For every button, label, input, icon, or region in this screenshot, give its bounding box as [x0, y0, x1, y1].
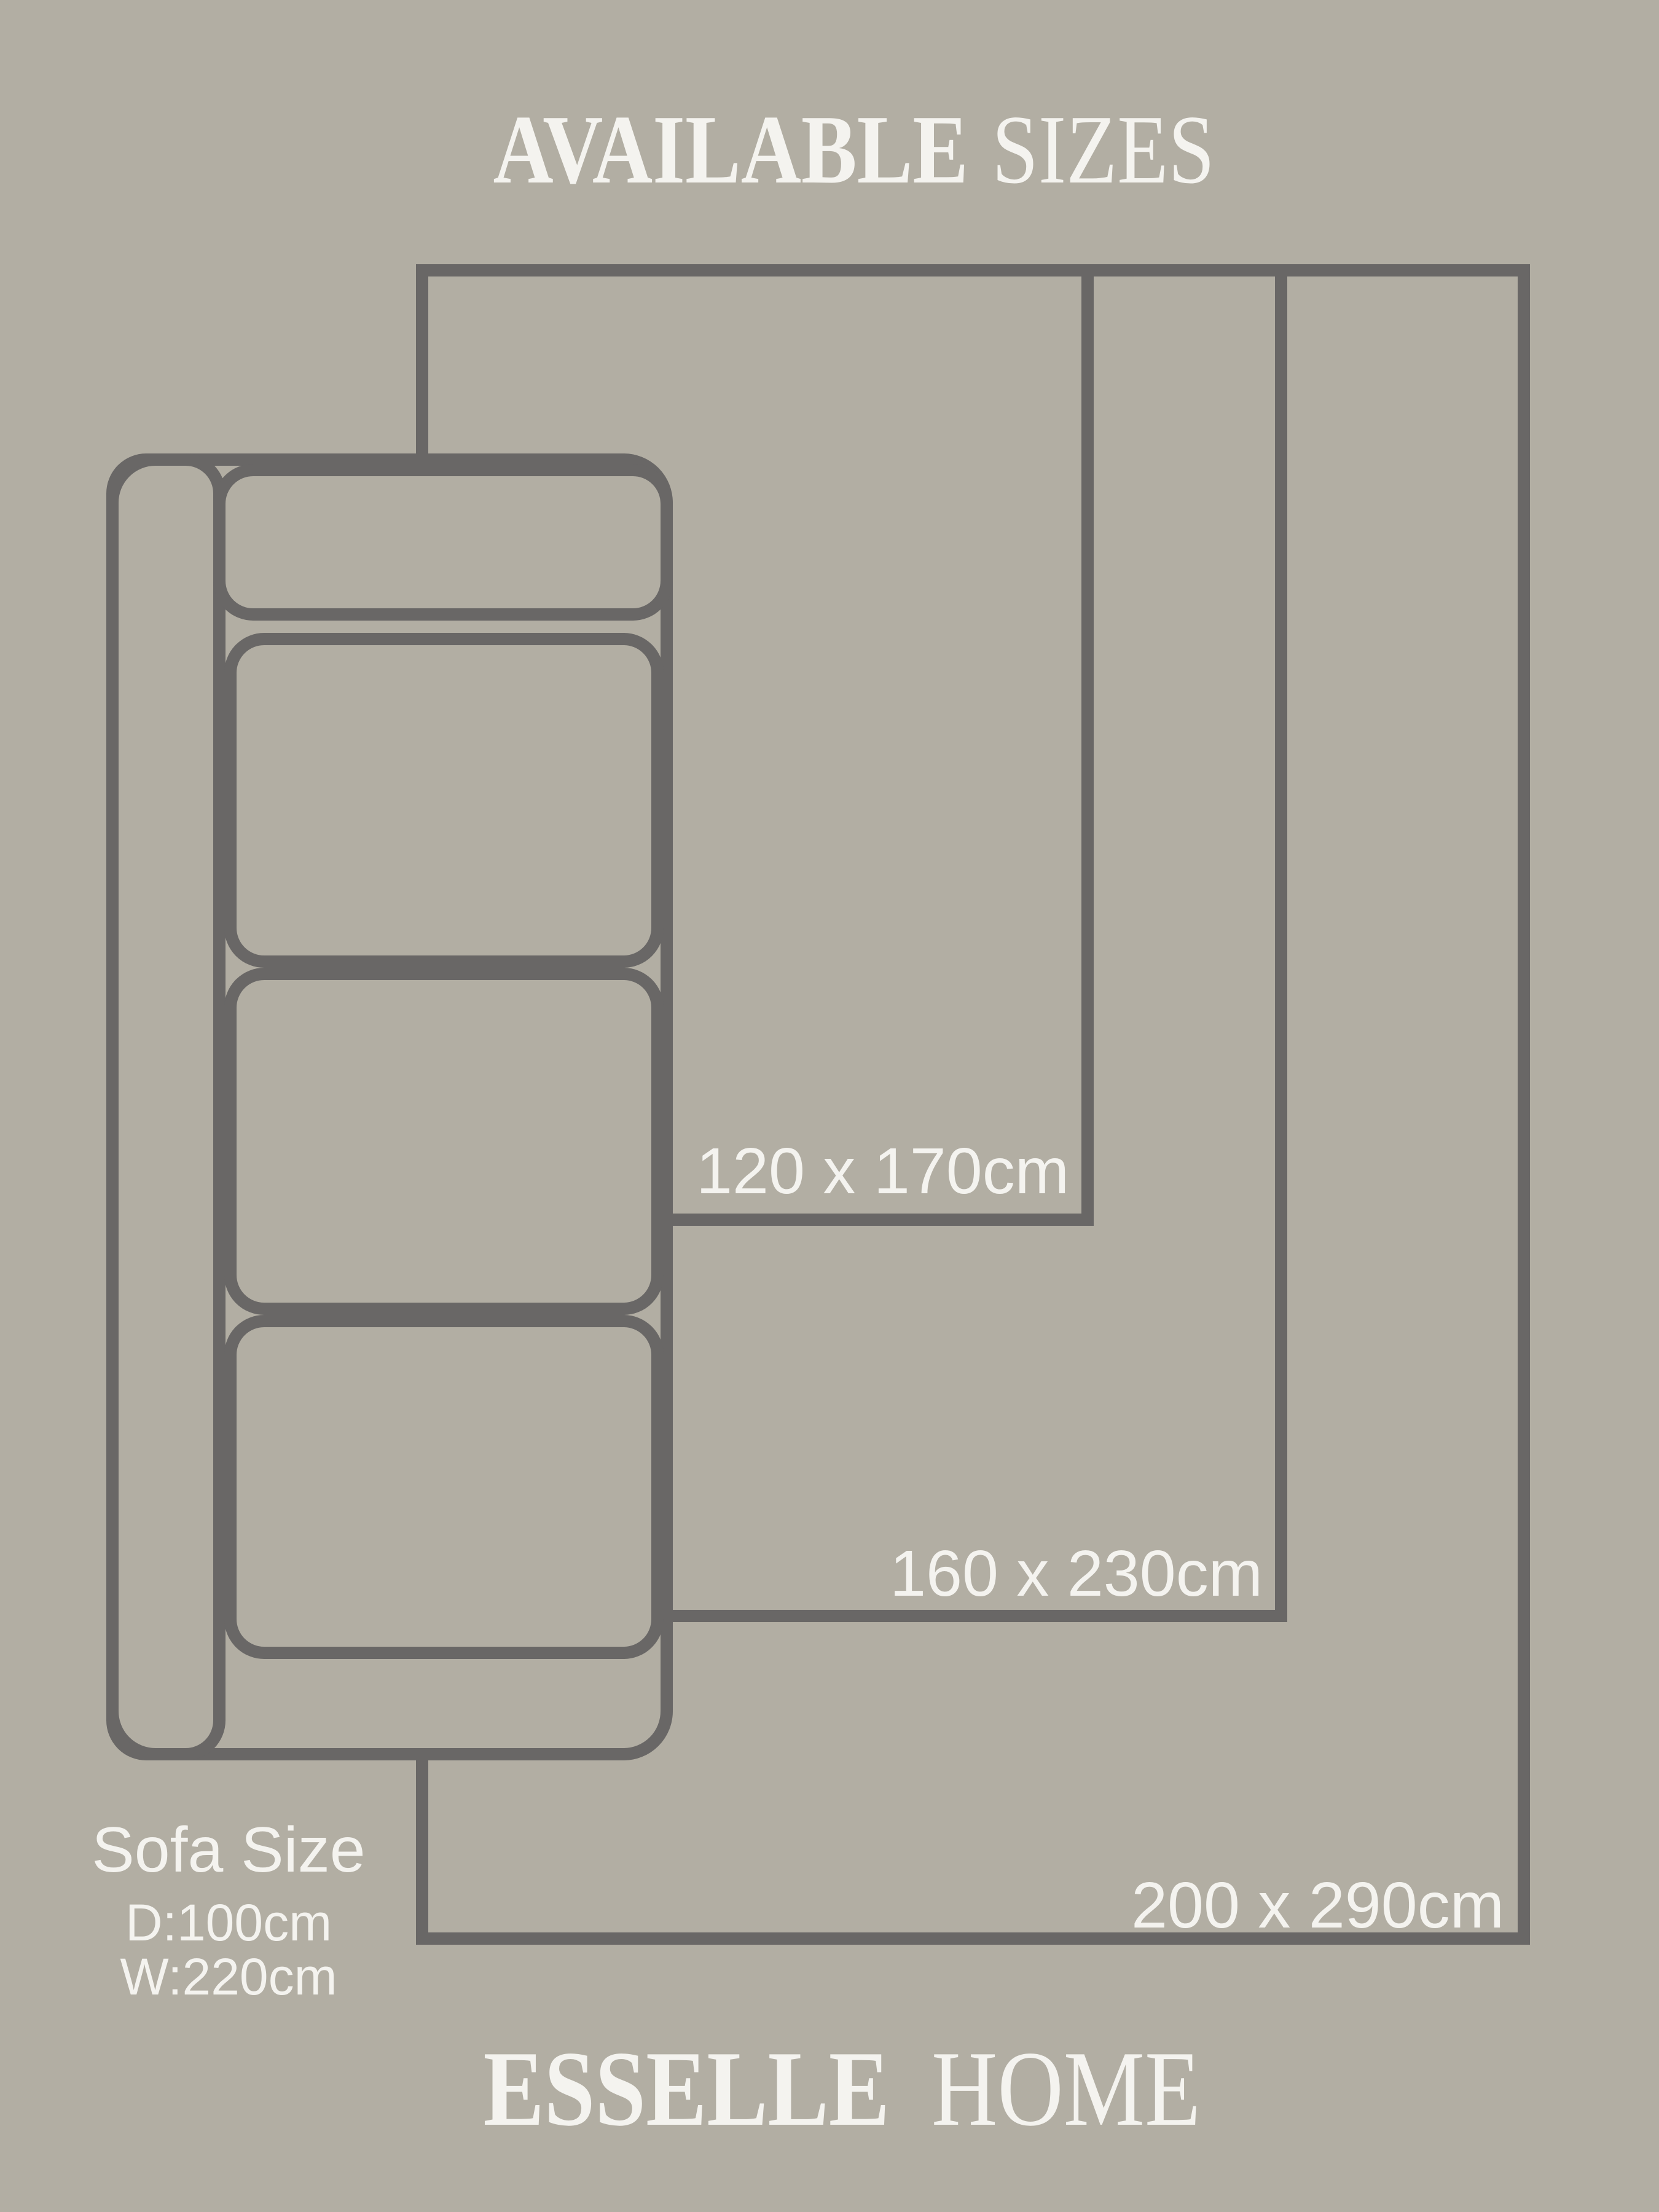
title-word-regular: SIZES — [992, 96, 1215, 205]
brand-word-regular: HOME — [931, 2030, 1201, 2149]
title-word-bold: AVAILABLE — [493, 96, 968, 205]
size-diagram: AVAILABLESIZES 120 x 170cm 160 x 230cm 2… — [0, 0, 1659, 2212]
title-text: AVAILABLESIZES — [493, 96, 1215, 205]
sofa-width-value: W:220cm — [120, 1948, 337, 2006]
sofa-depth-value: D:100cm — [125, 1894, 332, 1951]
brand-word-bold: ESSELLE — [483, 2030, 889, 2149]
sofa-size-legend: Sofa Size D:100cm W:220cm — [92, 1814, 365, 2006]
sofa-top-view — [112, 460, 667, 1754]
size-label-200x290: 200 x 290cm — [1131, 1869, 1504, 1942]
brand-logo: ESSELLEHOME — [483, 2030, 1200, 2149]
size-label-160x230: 160 x 230cm — [890, 1537, 1263, 1610]
available-sizes-canvas: AVAILABLESIZES 120 x 170cm 160 x 230cm 2… — [0, 0, 1659, 2212]
sofa-size-title: Sofa Size — [92, 1814, 365, 1886]
sofa-body-outline — [112, 460, 667, 1754]
brand-text: ESSELLEHOME — [483, 2030, 1200, 2149]
page-title: AVAILABLESIZES — [493, 96, 1215, 205]
size-label-120x170: 120 x 170cm — [696, 1135, 1069, 1207]
